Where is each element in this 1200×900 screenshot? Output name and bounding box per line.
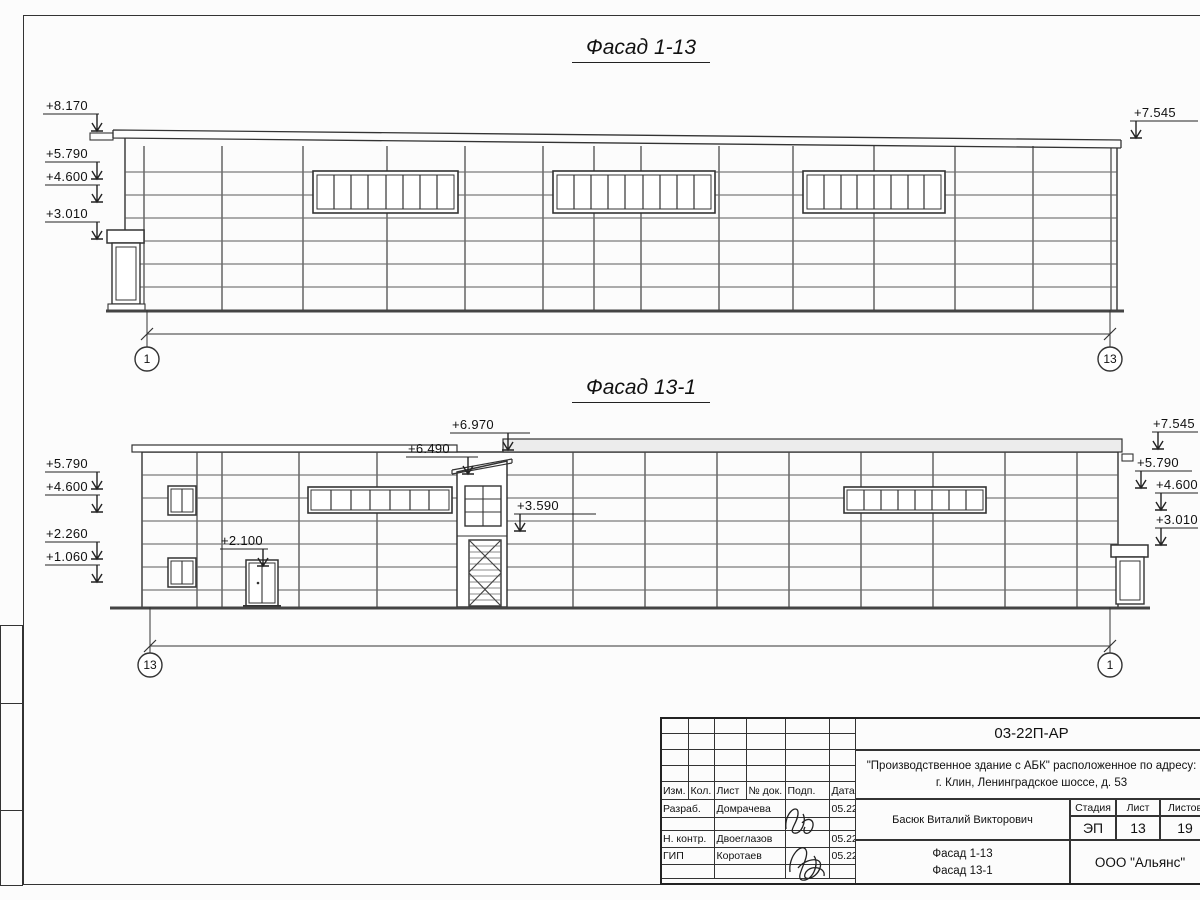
signature: [784, 838, 830, 884]
col-podp: Подп.: [785, 782, 829, 800]
elevation-mark: +4.600: [46, 479, 88, 494]
elevation-mark: +6.490: [408, 441, 450, 456]
elevation-mark: +2.260: [46, 526, 88, 541]
axis-bubble: 1: [135, 347, 159, 371]
doc-code: 03-22П-АР: [855, 717, 1200, 750]
project-name-line2: г. Клин, Ленинградское шоссе, д. 53: [936, 775, 1127, 792]
facade1-title: Фасад 1-13: [572, 36, 710, 63]
axis-bubble: 1: [1098, 653, 1122, 677]
sheet-label: Лист: [1116, 799, 1160, 816]
sheet-number: 13: [1116, 816, 1160, 840]
drawing-title-line1: Фасад 1-13: [932, 846, 992, 862]
facade-1-13: [43, 114, 1198, 371]
elevation-mark: +5.790: [1137, 455, 1179, 470]
facade-13-1: [45, 432, 1198, 677]
stage-label: Стадия: [1070, 799, 1116, 816]
elevation-mark: +4.600: [1156, 477, 1198, 492]
elevation-mark: +3.010: [46, 206, 88, 221]
col-list: Лист: [714, 782, 746, 800]
elevation-mark: +3.010: [1156, 512, 1198, 527]
sheets-total: 19: [1160, 816, 1200, 840]
staff-name: Домрачева: [714, 800, 785, 818]
staff-role: Н. контр.: [661, 831, 715, 848]
facade2-title: Фасад 13-1: [572, 376, 710, 403]
elevation-mark: +3.590: [517, 498, 559, 513]
elevation-mark: +6.970: [452, 417, 494, 432]
company-name: ООО "Альянс": [1070, 840, 1200, 885]
staff-role: ГИП: [661, 848, 715, 865]
elevation-mark: +8.170: [46, 98, 88, 113]
col-izm: Изм.: [661, 782, 689, 800]
signature: [781, 801, 823, 839]
project-name-line1: "Производственное здание с АБК" располож…: [867, 758, 1197, 775]
elevation-mark: +1.060: [46, 549, 88, 564]
drawing-title-line2: Фасад 13-1: [932, 863, 992, 879]
elevation-mark: +7.545: [1153, 416, 1195, 431]
elevation-mark: +5.790: [46, 146, 88, 161]
col-ndok: № док.: [746, 782, 785, 800]
elevation-mark: +5.790: [46, 456, 88, 471]
elevation-mark: +2.100: [221, 533, 263, 548]
drawing-sheet: { "drawing": { "facade1": { "title": "Фа…: [0, 0, 1200, 900]
staff-role: Разраб.: [661, 800, 715, 818]
elevation-mark: +4.600: [46, 169, 88, 184]
axis-bubble: 13: [1098, 347, 1122, 371]
stage-value: ЭП: [1070, 816, 1116, 840]
sheets-total-label: Листов: [1160, 799, 1200, 816]
client-name: Басюк Виталий Викторович: [855, 799, 1070, 840]
axis-bubble: 13: [138, 653, 162, 677]
staff-name: Двоеглазов: [714, 831, 785, 848]
staff-name: Коротаев: [714, 848, 785, 865]
elevation-mark: +7.545: [1134, 105, 1176, 120]
titleblock-left-table: Изм. Кол. Лист № док. Подп. Дата Разраб.…: [660, 717, 862, 879]
col-kol: Кол.: [688, 782, 714, 800]
